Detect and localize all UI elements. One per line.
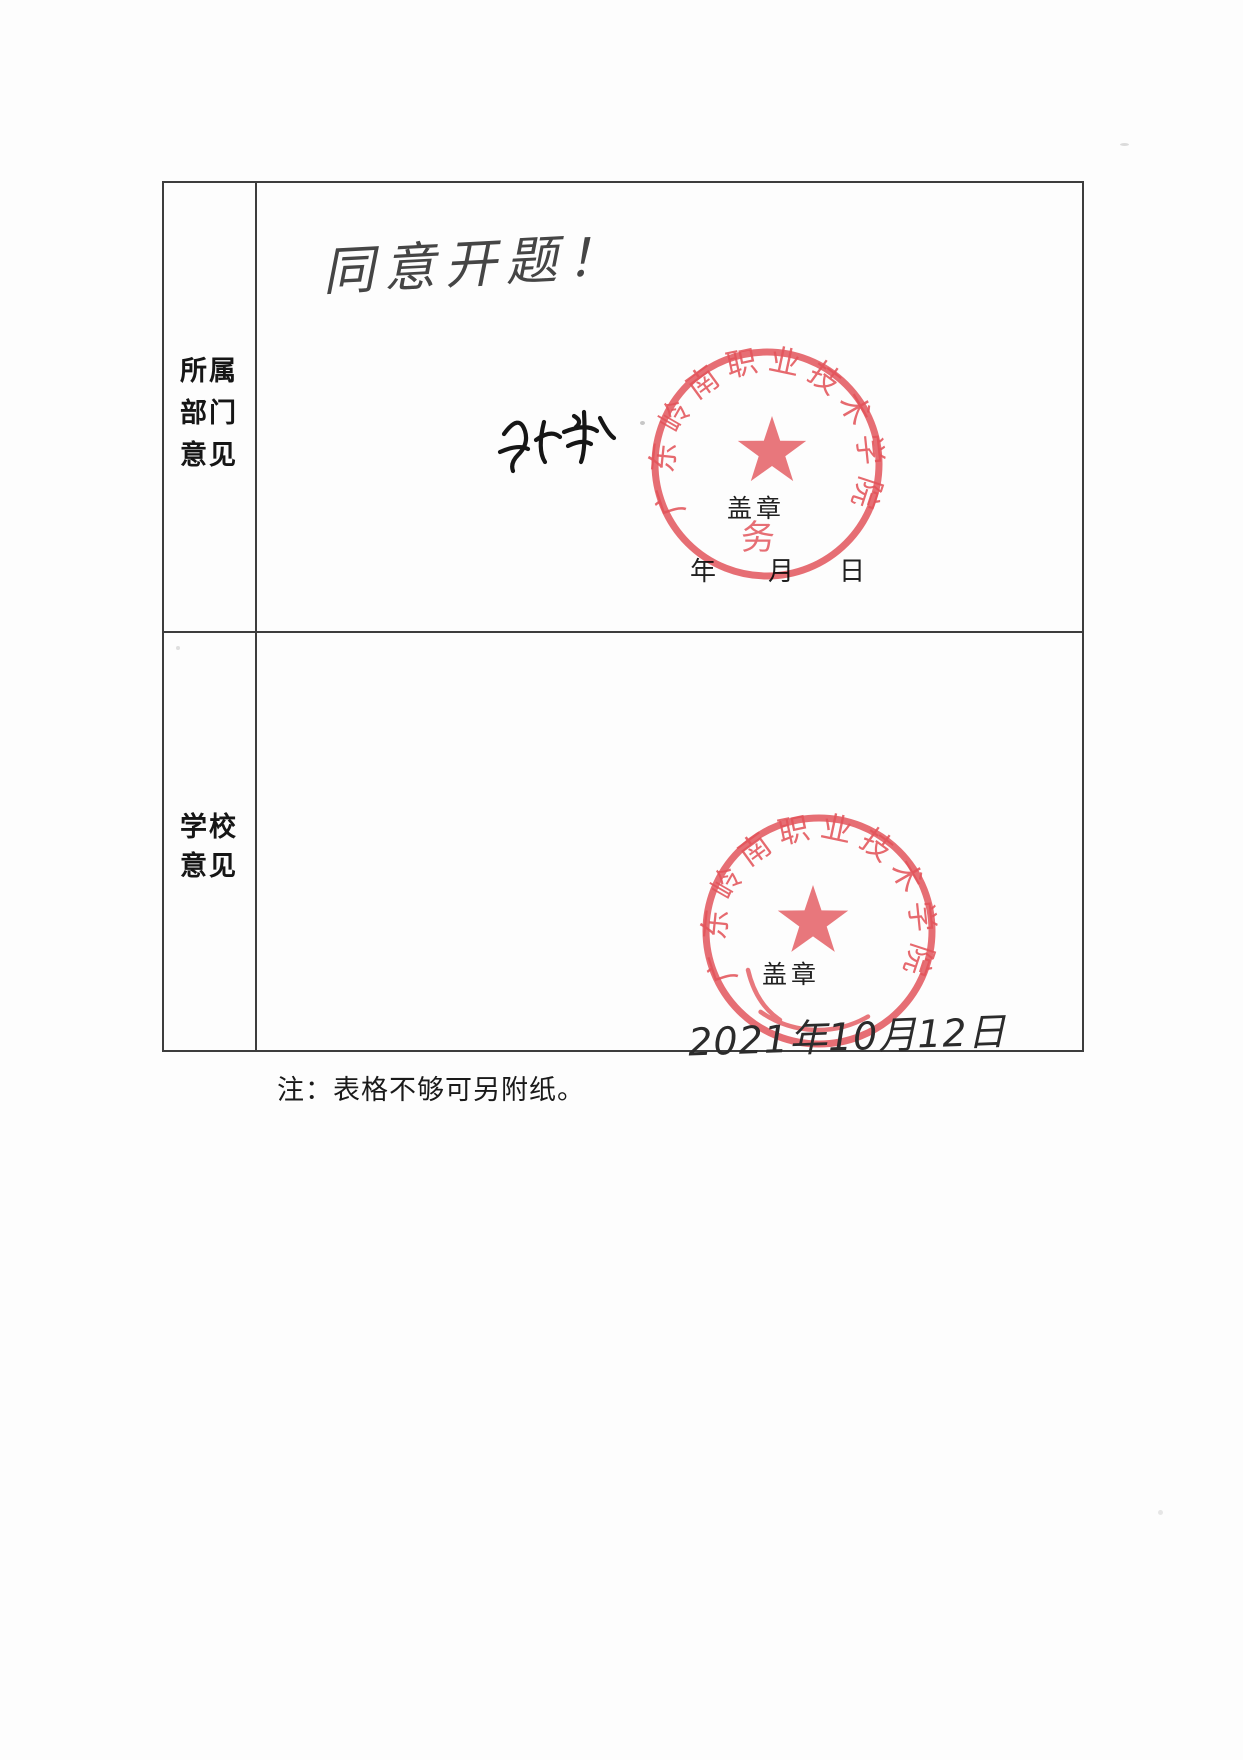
school-opinion-label: 学校 意见 xyxy=(162,808,256,886)
seal-star-icon xyxy=(778,885,848,952)
seal-ring-text: 广东岭南职业技术学院 xyxy=(697,809,942,988)
handwritten-approval-comment: 同意开题！ xyxy=(320,214,629,305)
scan-speck xyxy=(640,421,645,425)
scan-speck xyxy=(1120,143,1129,146)
label-line: 学校 xyxy=(162,808,256,847)
handwritten-date: 2021年10月12日 xyxy=(687,1000,1007,1066)
table-footnote: 注：表格不够可另附纸。 xyxy=(277,1068,585,1107)
label-line: 意见 xyxy=(162,847,256,886)
table-row-divider xyxy=(162,631,1084,633)
department-opinion-label: 所属 部门 意见 xyxy=(162,350,256,476)
handwritten-signature xyxy=(496,404,622,490)
scan-speck xyxy=(176,646,180,650)
table-column-divider xyxy=(255,181,257,1052)
label-line: 部门 xyxy=(162,392,256,434)
seal-star-icon xyxy=(738,416,806,481)
official-seal-academic-affairs-office: 广东岭南职业技术学院 教务处 xyxy=(645,342,889,586)
scan-speck xyxy=(1158,1510,1163,1515)
label-line: 所属 xyxy=(162,350,256,392)
scanned-approval-form-page: 所属 部门 意见 同意开题！ 盖章 年 月 日 广东岭南职业技术学院 教务 xyxy=(0,0,1243,1760)
table-outer-border xyxy=(162,181,1084,1052)
label-line: 意见 xyxy=(162,434,256,476)
